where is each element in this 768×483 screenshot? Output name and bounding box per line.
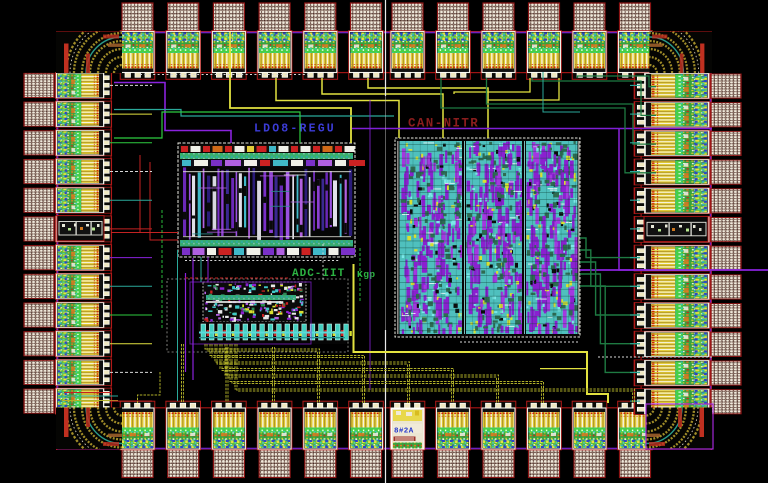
svg-text:LDO8-REGU: LDO8-REGU xyxy=(254,123,336,136)
svg-text:8#2A: 8#2A xyxy=(394,428,414,436)
svg-text:ADC-IIT: ADC-IIT xyxy=(292,268,345,280)
